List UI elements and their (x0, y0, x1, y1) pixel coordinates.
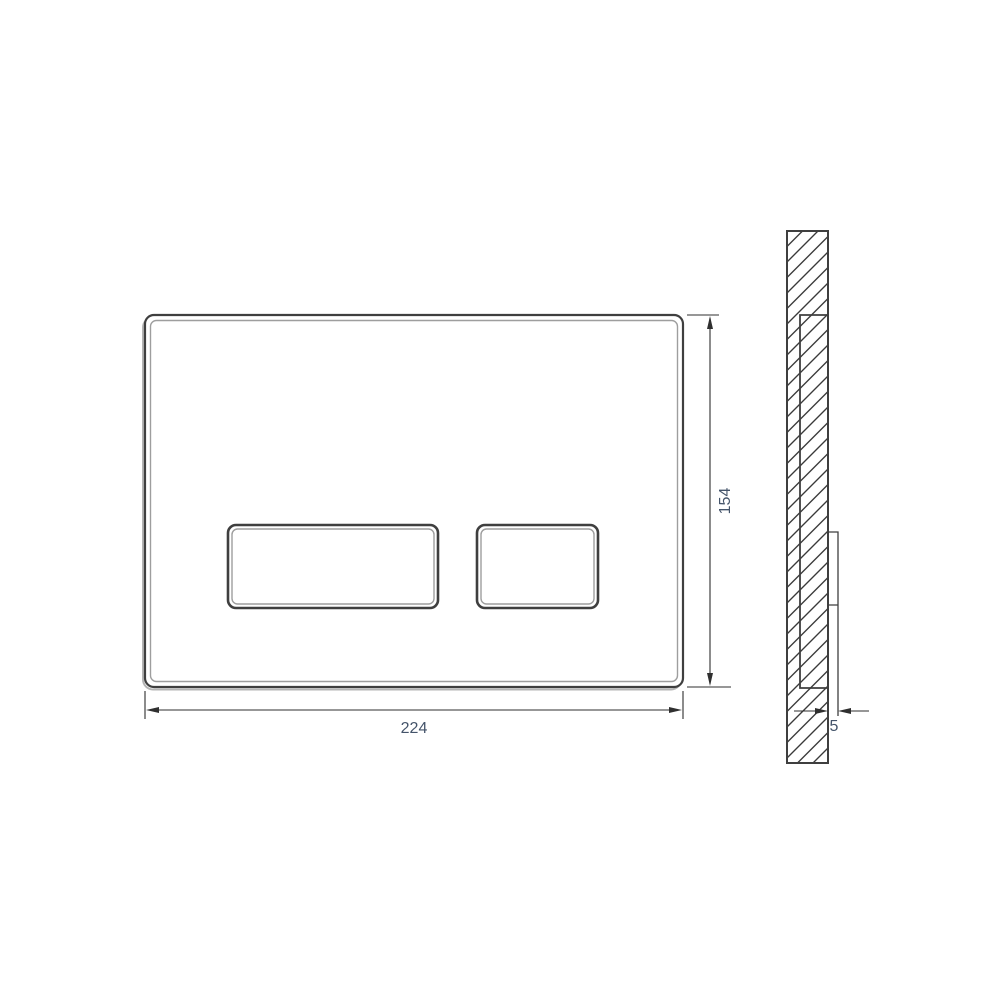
dimension-thickness-label: 5 (830, 718, 839, 735)
hatch-line (787, 283, 828, 324)
hatch-line (787, 562, 828, 603)
hatch-line (787, 578, 828, 619)
hatch-line (787, 500, 828, 541)
hatch-line (787, 655, 828, 696)
hatch-line (787, 454, 828, 495)
hatch-line (787, 531, 828, 572)
section-hatching (787, 231, 828, 763)
technical-drawing: 154 224 5 (0, 0, 1000, 1000)
section-outline (787, 231, 828, 763)
hatch-line (787, 624, 828, 665)
mounting-clip (828, 532, 838, 716)
hatch-line (787, 547, 828, 588)
hatch-line (787, 392, 828, 433)
hatch-line (787, 423, 828, 464)
hatch-line (787, 299, 828, 340)
dimension-thickness: 5 (794, 708, 869, 735)
side-view-section (787, 231, 838, 763)
flush-button-large (228, 525, 438, 608)
hatch-line (787, 593, 828, 634)
hatch-line (787, 671, 828, 712)
plate-outline (145, 315, 683, 687)
hatch-line (787, 231, 803, 247)
hatch-line (787, 640, 828, 681)
hatch-line (787, 231, 818, 262)
hatch-line (787, 361, 828, 402)
hatch-line (787, 686, 828, 727)
arrowhead-up (707, 316, 713, 329)
hatch-line (787, 516, 828, 557)
dimension-height-label: 154 (717, 488, 734, 515)
arrowhead-right (669, 707, 682, 713)
hatch-line (787, 702, 828, 743)
hatch-line (787, 717, 828, 758)
hatch-line (787, 469, 828, 510)
hatch-line (813, 748, 828, 763)
flush-button-small (477, 525, 598, 608)
drawing-canvas: 154 224 5 (0, 0, 1000, 1000)
hatch-line (787, 485, 828, 526)
arrowhead-left (146, 707, 159, 713)
hatch-line (798, 733, 829, 764)
dimension-height: 154 (687, 315, 734, 687)
dimension-width: 224 (145, 691, 683, 737)
dimension-width-label: 224 (401, 720, 428, 737)
hatch-line (787, 237, 828, 278)
hatch-line (787, 345, 828, 386)
hatch-line (787, 330, 828, 371)
hatch-line (787, 252, 828, 293)
hatch-line (787, 314, 828, 355)
hatch-line (787, 438, 828, 479)
hatch-line (787, 407, 828, 448)
hatch-line (787, 609, 828, 650)
hatch-line (787, 376, 828, 417)
arrowhead-down (707, 673, 713, 686)
front-view (143, 315, 683, 690)
hatch-line (787, 268, 828, 309)
arrowhead-inward-left (838, 708, 851, 714)
